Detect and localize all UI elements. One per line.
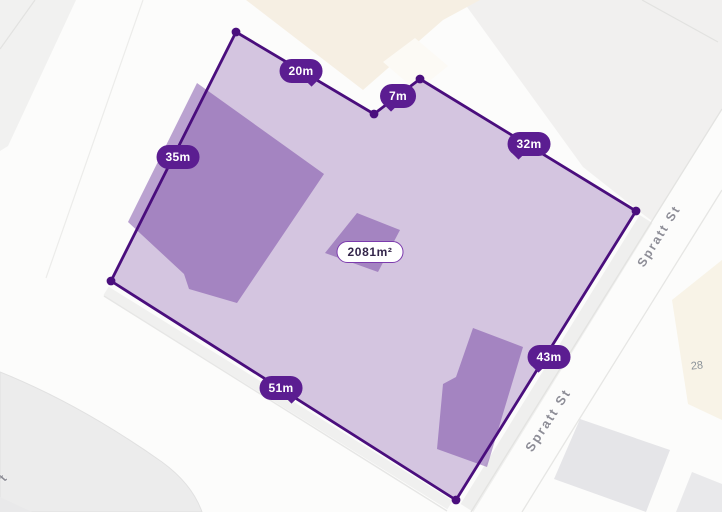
- measurement-pill-20m: 20m: [280, 59, 323, 83]
- measurement-pill-7m: 7m: [380, 84, 416, 108]
- vertex-dot[interactable]: [370, 110, 379, 119]
- vertex-dot[interactable]: [632, 207, 641, 216]
- vertex-dot[interactable]: [452, 496, 461, 505]
- vertex-dot[interactable]: [232, 28, 241, 37]
- vertex-dot[interactable]: [107, 277, 116, 286]
- measurement-pill-51m: 51m: [260, 376, 303, 400]
- area-pill: 2081m²: [337, 241, 404, 263]
- measurement-pill-32m: 32m: [508, 132, 551, 156]
- measurement-pill-35m: 35m: [157, 145, 200, 169]
- vertex-dot[interactable]: [416, 75, 425, 84]
- house-number: 28: [690, 359, 703, 372]
- area-label: 2081m²: [348, 245, 393, 259]
- map-view: Spratt St Spratt St 28 t 20m 7m 32m 35m …: [0, 0, 722, 512]
- measurement-pill-43m: 43m: [528, 345, 571, 369]
